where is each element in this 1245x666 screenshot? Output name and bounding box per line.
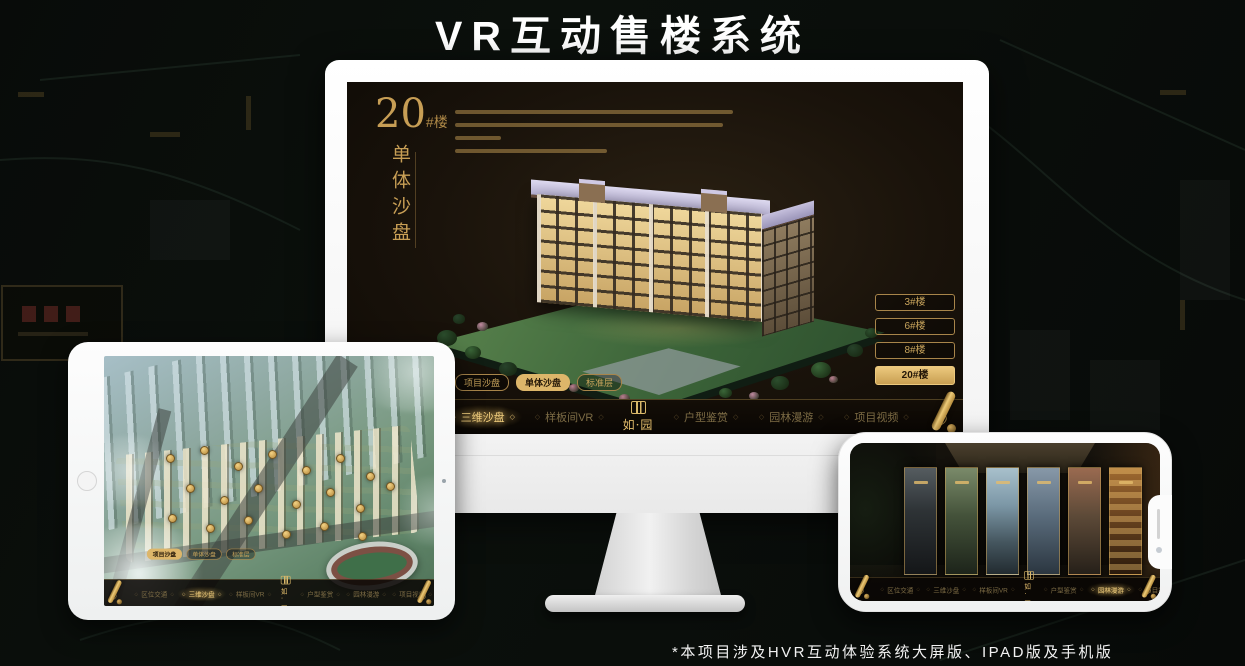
description-text-line	[455, 110, 733, 114]
floor-button[interactable]: 20#楼	[875, 366, 955, 385]
building-number-marker[interactable]	[292, 500, 301, 509]
tree	[847, 344, 863, 357]
nav-item[interactable]: 样板间VR	[530, 409, 609, 425]
scroll-brush-icon[interactable]	[1140, 574, 1156, 600]
gallery-panel[interactable]	[904, 467, 937, 575]
brand-logo-text: 如·园	[1024, 581, 1034, 601]
building-number-marker[interactable]	[302, 466, 311, 475]
building-number-marker[interactable]	[282, 530, 291, 539]
gallery-panel[interactable]	[945, 467, 978, 575]
description-text-line	[455, 136, 501, 140]
nav-left-group: 区位交通三维沙盘样板间VR	[877, 584, 1018, 594]
camera-icon	[1156, 547, 1162, 553]
tree	[465, 346, 481, 359]
building-number-suffix: #楼	[426, 114, 448, 130]
brand-logo: 如·园	[623, 401, 654, 433]
nav-item[interactable]: 园林漫游	[1087, 582, 1136, 597]
view-tab-group: 项目沙盘单体沙盘标准层	[455, 374, 622, 391]
tablet-nav-bar: 区位交通三维沙盘样板间VR 如·园 户型鉴赏园林漫游项目视频	[104, 579, 434, 606]
view-tab[interactable]: 单体沙盘	[187, 549, 222, 560]
scroll-brush-icon[interactable]	[929, 390, 957, 434]
tree	[477, 322, 488, 331]
nav-item[interactable]: 户型鉴赏	[297, 589, 343, 599]
building-number-marker[interactable]	[206, 524, 215, 533]
nav-item[interactable]: 区位交通	[877, 584, 923, 594]
building-number-marker[interactable]	[166, 454, 175, 463]
building-side-facade	[762, 216, 814, 337]
ruyuan-seal-icon	[1024, 571, 1034, 579]
gallery-panel[interactable]	[1109, 467, 1142, 575]
nav-right-group: 户型鉴赏园林漫游项目视频	[663, 409, 919, 425]
nav-item[interactable]: 三维沙盘	[177, 586, 226, 601]
floor-button[interactable]: 3#楼	[875, 294, 955, 311]
monitor-base	[545, 595, 745, 612]
ruyuan-seal-icon	[281, 576, 291, 584]
nav-item[interactable]: 项目视频	[839, 409, 914, 425]
view-tab[interactable]: 标准层	[226, 549, 255, 560]
nav-item[interactable]: 园林漫游	[754, 409, 829, 425]
gallery-panel[interactable]	[986, 467, 1019, 575]
tablet-ui-overlay: 项目沙盘单体沙盘标准层 区位交通三维沙盘样板间VR 如·园 户型鉴赏园林漫游项目…	[104, 546, 434, 606]
building-number-marker[interactable]	[200, 446, 209, 455]
tree	[811, 362, 831, 378]
view-tab-group: 项目沙盘单体沙盘标准层	[147, 549, 256, 560]
ruyuan-seal-icon	[631, 401, 646, 414]
sandbox-vertical-title: 单体沙盘	[387, 144, 414, 248]
view-tab[interactable]: 项目沙盘	[147, 549, 182, 560]
building-number-marker[interactable]	[358, 532, 367, 541]
nav-item[interactable]: 园林漫游	[343, 589, 389, 599]
tree	[719, 388, 732, 398]
gallery-panel[interactable]	[1027, 467, 1060, 575]
brand-logo: 如·园	[1024, 571, 1034, 601]
building-number-marker[interactable]	[356, 504, 365, 513]
building-number-marker[interactable]	[244, 516, 253, 525]
building-number-marker[interactable]	[220, 496, 229, 505]
building-model-render	[419, 140, 899, 410]
roof-tower	[701, 189, 727, 213]
building-number-marker[interactable]	[234, 462, 243, 471]
building-number-marker[interactable]	[366, 472, 375, 481]
brand-logo: 如·园	[281, 576, 291, 606]
home-button[interactable]	[77, 471, 97, 491]
camera-icon	[442, 479, 446, 483]
tree	[771, 376, 789, 390]
nav-item[interactable]: 样板间VR	[226, 589, 275, 599]
footnote-text: *本项目涉及HVR互动体验系统大屏版、IPAD版及手机版	[672, 641, 1242, 662]
gallery-panel-row	[904, 467, 1142, 575]
phone-nav-bar: 区位交通三维沙盘样板间VR 如·园 户型鉴赏园林漫游项目视频	[850, 577, 1160, 601]
building-number-marker[interactable]	[320, 522, 329, 531]
vr-showcase-poster: VR互动售楼系统 20#楼 单体沙盘 3#楼6#楼8#楼20#楼	[0, 0, 1245, 666]
view-tab[interactable]: 标准层	[577, 374, 622, 391]
floor-button[interactable]: 6#楼	[875, 318, 955, 335]
floor-button[interactable]: 8#楼	[875, 342, 955, 359]
tree	[453, 314, 465, 324]
description-text-line	[455, 123, 723, 127]
building-number-marker[interactable]	[336, 454, 345, 463]
phone-screen: 区位交通三维沙盘样板间VR 如·园 户型鉴赏园林漫游项目视频	[850, 443, 1160, 601]
building-number-marker[interactable]	[186, 484, 195, 493]
tablet-screen: 项目沙盘单体沙盘标准层 区位交通三维沙盘样板间VR 如·园 户型鉴赏园林漫游项目…	[104, 356, 434, 606]
roof-tower	[579, 179, 605, 203]
nav-item[interactable]: 样板间VR	[969, 584, 1018, 594]
building-number-marker[interactable]	[326, 488, 335, 497]
phone-ui-overlay: 区位交通三维沙盘样板间VR 如·园 户型鉴赏园林漫游项目视频	[850, 577, 1160, 601]
building-number-marker[interactable]	[268, 450, 277, 459]
description-text-line	[455, 149, 607, 153]
scroll-brush-icon[interactable]	[416, 579, 432, 605]
scroll-brush-icon[interactable]	[854, 574, 870, 600]
tree	[829, 376, 838, 383]
phone-notch	[1148, 495, 1172, 569]
view-tab[interactable]: 项目沙盘	[455, 374, 509, 391]
nav-item[interactable]: 户型鉴赏	[1041, 584, 1087, 594]
page-title: VR互动售楼系统	[0, 2, 1245, 62]
nav-right-group: 户型鉴赏园林漫游项目视频	[297, 589, 434, 599]
building-number-marker[interactable]	[254, 484, 263, 493]
building-number-marker[interactable]	[168, 514, 177, 523]
scroll-brush-icon[interactable]	[106, 579, 122, 605]
building-number-marker[interactable]	[386, 482, 395, 491]
building-front-facade	[537, 194, 762, 322]
nav-item[interactable]: 区位交通	[131, 589, 177, 599]
gallery-panel[interactable]	[1068, 467, 1101, 575]
view-tab[interactable]: 单体沙盘	[516, 374, 570, 391]
building-number-heading: 20#楼	[375, 94, 448, 134]
floor-button-group: 3#楼6#楼8#楼20#楼	[875, 294, 955, 385]
brand-logo-text: 如·园	[623, 416, 654, 433]
speaker-icon	[1157, 509, 1160, 539]
nav-left-group: 区位交通三维沙盘样板间VR	[131, 586, 274, 601]
nav-item[interactable]: 三维沙盘	[443, 405, 522, 429]
nav-item[interactable]: 户型鉴赏	[669, 409, 744, 425]
vertical-divider	[415, 152, 416, 248]
brand-logo-text: 如·园	[281, 585, 291, 606]
nav-item[interactable]: 三维沙盘	[923, 584, 969, 594]
